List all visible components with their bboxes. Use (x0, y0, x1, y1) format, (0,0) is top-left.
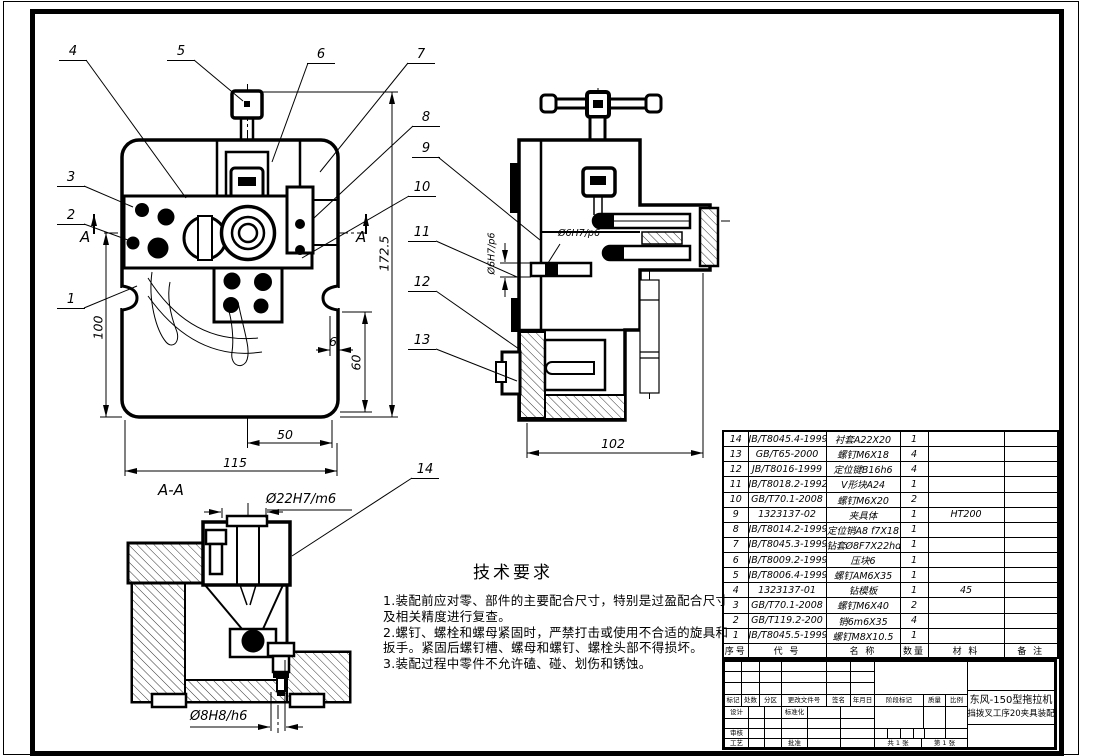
balloon-13: 13 (408, 333, 436, 350)
bom-material: 45 (928, 583, 1004, 598)
dimension-half-width: 50 (265, 427, 305, 442)
bom-no: 2 (723, 613, 748, 628)
bom-qty: 2 (900, 492, 928, 507)
bom-row: 1JB/T8045.5-1999螺钉M8X10.51 (723, 628, 1058, 643)
bom-note (1004, 431, 1058, 447)
bom-qty: 2 (900, 598, 928, 613)
dimension-base-pin-fit: Ø8H8/h6 (190, 709, 247, 724)
bom-qty: 1 (900, 537, 928, 552)
bom-code: JB/T8006.4-1999 (748, 568, 826, 583)
bom-row: 91323137-02夹具体1HT200 (723, 507, 1058, 522)
bom-qty: 4 (900, 462, 928, 477)
balloon-1: 1 (57, 292, 85, 309)
balloon-6: 6 (307, 47, 335, 64)
balloon-10: 10 (408, 180, 436, 197)
balloon-4: 4 (59, 44, 87, 61)
bom-row: 8JB/T8014.2-1999定位销A8 f7X181 (723, 522, 1058, 537)
bom-code: JB/T8016-1999 (748, 462, 826, 477)
bom-material (928, 553, 1004, 568)
bom-qty: 1 (900, 583, 928, 598)
bom-name: 螺钉AM6X35 (826, 568, 900, 583)
bom-row: 3GB/T70.1-2008螺钉M6X402 (723, 598, 1058, 613)
bom-row: 14JB/T8045.4-1999衬套A22X201 (723, 431, 1058, 447)
balloon-9: 9 (412, 141, 440, 158)
bom-material (928, 522, 1004, 537)
bom-note (1004, 507, 1058, 522)
bom-row: 13GB/T65-2000螺钉M6X184 (723, 447, 1058, 462)
bom-name: 定位键B16h6 (826, 462, 900, 477)
dimension-total-height: 172.5 (377, 232, 392, 276)
balloon-11: 11 (408, 225, 436, 242)
balloon-5: 5 (167, 44, 195, 61)
bom-row: 5JB/T8006.4-1999螺钉AM6X351 (723, 568, 1058, 583)
bom-header-row: 序号代 号名 称数量材 料备 注 (723, 643, 1058, 658)
bom-code: JB/T8045.4-1999 (748, 431, 826, 447)
bom-no: 10 (723, 492, 748, 507)
dimension-left-height: 100 (91, 311, 106, 345)
bom-name: 螺钉M6X20 (826, 492, 900, 507)
bom-name: 定位销A8 f7X18 (826, 522, 900, 537)
bom-row: 41323137-01钻模板145 (723, 583, 1058, 598)
bom-material (928, 447, 1004, 462)
bom-qty: 1 (900, 477, 928, 492)
bom-material (928, 613, 1004, 628)
bom-material: HT200 (928, 507, 1004, 522)
tech-requirement-line: 及相关精度进行复查。 (383, 609, 719, 625)
bom-qty: 4 (900, 447, 928, 462)
bom-code: GB/T119.2-200 (748, 613, 826, 628)
bom-note (1004, 613, 1058, 628)
bom-row: 2GB/T119.2-200销6m6X354 (723, 613, 1058, 628)
sheet-number: 第 1 张 (921, 738, 968, 748)
bom-material (928, 431, 1004, 447)
technical-requirements-title: 技术要求 (473, 558, 719, 583)
tech-requirement-line: 1.装配前应对零、部件的主要配合尺寸，特别是过盈配合尺寸 (383, 593, 719, 609)
bom-no: 14 (723, 431, 748, 447)
bom-material (928, 598, 1004, 613)
bom-material (928, 462, 1004, 477)
bom-header-note: 备 注 (1004, 643, 1058, 658)
side-view (496, 88, 730, 420)
bom-note (1004, 598, 1058, 613)
bom-note (1004, 447, 1058, 462)
dimension-side-width: 102 (593, 436, 633, 451)
label-approve: 批准 (781, 738, 808, 748)
bom-row: 11JB/T8018.2-1992V形块A241 (723, 477, 1058, 492)
bom-material (928, 477, 1004, 492)
bom-row: 7JB/T8045.3-1999钻套Ø8F7X22hdX201 (723, 537, 1058, 552)
bom-row: 6JB/T8009.2-1999压块61 (723, 553, 1058, 568)
bom-note (1004, 553, 1058, 568)
bom-code: GB/T65-2000 (748, 447, 826, 462)
bom-no: 8 (723, 522, 748, 537)
bom-material (928, 537, 1004, 552)
bom-note (1004, 583, 1058, 598)
drawing-title: 换挡拨叉工序20夹具装配图 (967, 708, 1055, 721)
bom-header-material: 材 料 (928, 643, 1004, 658)
section-letter-left: A (80, 228, 90, 246)
balloon-7: 7 (407, 47, 435, 64)
bom-name: V形块A24 (826, 477, 900, 492)
bom-qty: 4 (900, 613, 928, 628)
bom-code: GB/T70.1-2008 (748, 598, 826, 613)
bom-row: 10GB/T70.1-2008螺钉M6X202 (723, 492, 1058, 507)
bom-name: 夹具体 (826, 507, 900, 522)
dimension-bushing-fit: Ø22H7/m6 (266, 492, 336, 507)
balloon-14: 14 (411, 462, 439, 479)
bom-code: JB/T8018.2-1992 (748, 477, 826, 492)
bom-material (928, 568, 1004, 583)
bom-no: 13 (723, 447, 748, 462)
bom-note (1004, 462, 1058, 477)
bom-code: 1323137-01 (748, 583, 826, 598)
bom-no: 1 (723, 628, 748, 643)
bom-no: 6 (723, 553, 748, 568)
bom-no: 12 (723, 462, 748, 477)
bom-code: JB/T8045.3-1999 (748, 537, 826, 552)
tech-requirement-line: 扳手。紧固后螺钉槽、螺母和螺钉、螺栓头部不得损坏。 (383, 640, 719, 656)
bom-code: JB/T8009.2-1999 (748, 553, 826, 568)
section-view (128, 503, 350, 733)
bom-name: 衬套A22X20 (826, 431, 900, 447)
bom-name: 螺钉M6X18 (826, 447, 900, 462)
product-name: 东风-150型拖拉机 (970, 694, 1053, 708)
bom-name: 螺钉M8X10.5 (826, 628, 900, 643)
bom-name: 销6m6X35 (826, 613, 900, 628)
bom-note (1004, 628, 1058, 643)
tech-requirement-line: 2.螺钉、螺栓和螺母紧固时，严禁打击或使用不合适的旋具和 (383, 625, 719, 641)
bom-qty: 1 (900, 553, 928, 568)
bom-header-code: 代 号 (748, 643, 826, 658)
bom-header-no: 序号 (723, 643, 748, 658)
label-process: 工艺 (724, 738, 749, 748)
bom-no: 7 (723, 537, 748, 552)
bom-note (1004, 522, 1058, 537)
balloon-2: 2 (57, 208, 85, 225)
bom-note (1004, 477, 1058, 492)
bom-note (1004, 492, 1058, 507)
balloon-8: 8 (412, 110, 440, 127)
bom-qty: 1 (900, 431, 928, 447)
bom-name: 钻套Ø8F7X22hdX20 (826, 537, 900, 552)
bom-qty: 1 (900, 568, 928, 583)
dimension-total-width: 115 (205, 455, 265, 470)
bom-note (1004, 537, 1058, 552)
technical-requirements: 技术要求 1.装配前应对零、部件的主要配合尺寸，特别是过盈配合尺寸 及相关精度进… (383, 558, 719, 672)
parts-list: 14JB/T8045.4-1999衬套A22X201 13GB/T65-2000… (722, 430, 1057, 659)
title-block: 标记 处数 分区 更改文件号 签名 年月日 设计 标准化 审核 工艺 批准 阶段… (722, 659, 1057, 750)
bom-header-qty: 数量 (900, 643, 928, 658)
bom-no: 5 (723, 568, 748, 583)
bom-row: 12JB/T8016-1999定位键B16h64 (723, 462, 1058, 477)
bom-qty: 1 (900, 507, 928, 522)
bom-code: JB/T8014.2-1999 (748, 522, 826, 537)
bom-name: 螺钉M6X40 (826, 598, 900, 613)
plan-view (94, 84, 366, 434)
dimension-pin-fit-vertical: Ø6H7/p6 (487, 225, 498, 283)
balloon-3: 3 (57, 170, 85, 187)
tech-requirement-line: 3.装配过程中零件不允许磕、碰、划伤和锈蚀。 (383, 656, 719, 672)
dimension-right-height: 60 (349, 351, 364, 375)
drawing-sheet: 1 2 3 4 5 6 7 8 9 10 11 12 13 14 A A A-A… (0, 0, 1109, 756)
bom-code: 1323137-02 (748, 507, 826, 522)
dimension-pin-fit-horizontal: Ø6H7/p6 (550, 228, 608, 239)
dimension-slot-offset: 6 (327, 334, 339, 349)
bom-no: 3 (723, 598, 748, 613)
bom-name: 钻模板 (826, 583, 900, 598)
bom-material (928, 492, 1004, 507)
bom-no: 11 (723, 477, 748, 492)
sheet-total: 共 1 张 (874, 738, 922, 748)
section-view-label: A-A (158, 481, 184, 499)
bom-code: JB/T8045.5-1999 (748, 628, 826, 643)
bom-code: GB/T70.1-2008 (748, 492, 826, 507)
bom-header-name: 名 称 (826, 643, 900, 658)
bom-no: 4 (723, 583, 748, 598)
bom-name: 压块6 (826, 553, 900, 568)
bom-qty: 1 (900, 522, 928, 537)
balloon-12: 12 (408, 275, 436, 292)
bom-no: 9 (723, 507, 748, 522)
section-letter-right: A (356, 228, 366, 246)
bom-qty: 1 (900, 628, 928, 643)
bom-material (928, 628, 1004, 643)
bom-note (1004, 568, 1058, 583)
